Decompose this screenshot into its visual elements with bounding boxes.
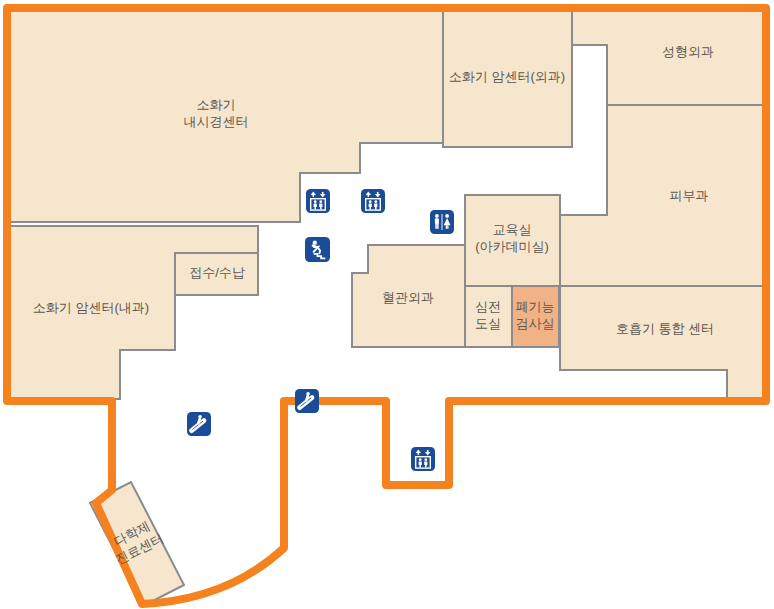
escalator-icon xyxy=(187,412,211,436)
floor-plan-graphic xyxy=(0,0,774,609)
room-respiratory-integrated-center[interactable] xyxy=(560,286,766,399)
room-digestive-cancer-center-surgery[interactable] xyxy=(443,10,572,147)
room-ecg[interactable] xyxy=(465,286,512,347)
elevator-icon xyxy=(411,447,435,471)
room-reception-payment[interactable] xyxy=(175,253,258,295)
floor-map: 소화기 내시경센터 소화기 암센터(외과) 성형외과 피부과 소화기 암센터(내… xyxy=(0,0,774,609)
room-education-academy[interactable] xyxy=(465,195,560,286)
room-dermatology[interactable] xyxy=(560,105,766,286)
elevator-icon xyxy=(306,189,330,213)
restroom-icon xyxy=(430,210,454,234)
escalator-icon xyxy=(295,389,319,413)
room-digestive-cancer-center-internal[interactable] xyxy=(8,226,258,399)
room-plastic-surgery[interactable] xyxy=(572,10,766,105)
elevator-icon xyxy=(361,189,385,213)
room-pulmonary-function-test[interactable] xyxy=(512,286,559,347)
room-vascular-surgery[interactable] xyxy=(352,245,465,347)
stairs-icon xyxy=(305,237,330,262)
